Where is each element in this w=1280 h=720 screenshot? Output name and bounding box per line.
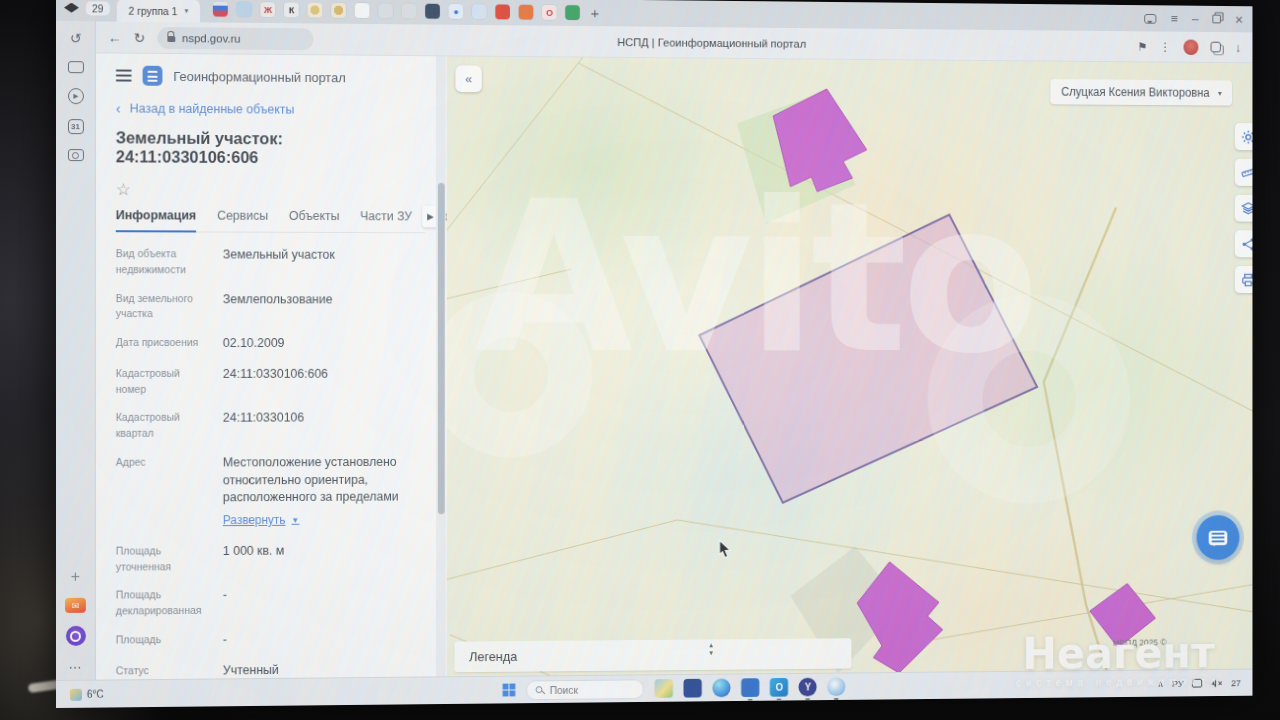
window-controls: ≡ – × [1145,11,1244,26]
edge-icon[interactable] [713,678,731,697]
parcel-fields: Вид объекта недвижимостиЗемельный участо… [116,246,425,680]
add-panel-icon[interactable]: + [67,569,83,585]
legend-label: Легенда [469,649,517,664]
hamburger-menu-icon[interactable] [116,69,132,81]
field-row: АдресМестоположение установлено относите… [116,454,425,531]
field-value: - [223,631,227,649]
favicon-strip: ЖК●О [213,2,580,20]
search-icon [536,686,543,693]
weather-icon [70,688,82,700]
favicon-red[interactable] [496,4,511,19]
tab-counter-badge[interactable]: 29 [86,1,110,15]
more-menu-icon[interactable]: ⋮ [1160,40,1171,54]
weather-widget[interactable]: 6°C [70,688,104,700]
windows-start-icon[interactable] [503,683,516,696]
favicon-orange[interactable] [519,5,534,20]
field-row: Вид земельного участкаЗемлепользование [116,291,425,323]
browser-side-rail: ↺▶31 +✉⋯ [56,21,96,681]
map-ruler-tool[interactable] [1235,159,1253,186]
more-icon[interactable]: ⋯ [67,659,83,675]
favicon-pin-2[interactable] [402,4,417,19]
history-icon[interactable]: ↺ [67,30,83,46]
field-row: Кадастровый квартал24:11:0330106 [116,410,425,442]
minimize-button[interactable]: – [1192,14,1199,24]
favicon-doc[interactable] [355,3,370,18]
map-print-tool[interactable] [1235,266,1253,293]
sphere-browser-icon[interactable] [828,677,846,696]
panel-tab-3[interactable]: Объекты [289,209,340,232]
pinned-cap-icon[interactable] [64,3,79,13]
map-canvas[interactable]: Avito « Слуцкая Ксения Викторовна ▾ НСПД… [447,56,1253,677]
screenshot-icon[interactable] [67,149,83,161]
field-label: Вид объекта недвижимости [116,246,223,278]
field-value: Местоположение установлено относительно … [223,454,425,530]
favicon-shield[interactable] [237,2,252,17]
panel-tab-4[interactable]: Части ЗУ [360,209,412,232]
rdp-icon[interactable] [742,678,760,697]
favicon-emblem-2[interactable] [331,3,346,18]
close-button[interactable]: × [1235,13,1243,25]
back-icon[interactable]: ← [108,29,122,45]
new-tab-button[interactable]: + [591,4,599,21]
favicon-pin-1[interactable] [378,3,393,18]
monitor-screen: 29 2 группа 1 ▾ ЖК●О + ≡ – × ↺▶31 +✉⋯ ← … [56,0,1252,708]
widgets-icon[interactable] [655,679,673,698]
panel-scrollbar[interactable] [436,56,446,677]
map-share-tool[interactable] [1235,230,1253,257]
photo-of-monitor: { "browser": { "tab_count": "29", "tab_g… [0,0,1280,720]
field-row: Площадь- [116,630,425,650]
field-row: Вид объекта недвижимостиЗемельный участо… [116,246,425,278]
tray-clock[interactable]: 27 [1231,677,1243,688]
search-placeholder: Поиск [550,683,578,695]
lock-icon [167,36,175,42]
download-icon[interactable]: ↓ [1235,40,1241,55]
page-title: НСПД | Геоинформационный портал [617,36,806,49]
chevron-down-icon: ▼ [291,515,299,526]
field-value: 1 000 кв. м [223,542,285,574]
chat-bubble-icon[interactable] [1145,13,1157,23]
legend-bar[interactable]: Легенда ▲▼ [454,638,851,672]
map-toolbox [1235,123,1253,293]
taskbar-search[interactable]: Поиск [526,679,644,700]
browser-menu-icon[interactable]: ≡ [1171,11,1178,26]
neagent-brand: Неагент [1016,632,1221,674]
yandex-browser-icon[interactable]: Y [799,678,817,697]
favicon-emblem-1[interactable] [308,3,323,18]
field-label: Статус [116,662,223,681]
portal-logo-icon [143,66,163,86]
portal-title: Геоинформационный портал [173,68,345,84]
chat-lines-icon [1209,530,1228,545]
favorite-star-icon[interactable]: ☆ [116,179,134,200]
back-to-results-link[interactable]: ‹ Назад в найденные объекты [116,101,425,117]
parcel-title: Земельный участок: 24:11:0330106:606 [116,128,425,168]
tabs-icon[interactable] [67,61,83,73]
chat-fab-button[interactable] [1197,515,1240,560]
address-bar[interactable]: nspd.gov.ru [157,26,313,49]
profile-avatar[interactable] [1183,39,1198,55]
expand-address-link[interactable]: Развернуть▼ [223,512,299,529]
mail-icon[interactable]: ✉ [65,598,86,613]
avito-watermark: Avito [474,173,1034,382]
parcel-info-panel: Геоинформационный портал ‹ Назад в найде… [96,53,447,680]
calendar-icon[interactable]: 31 [67,119,83,134]
bookmark-icon[interactable]: ⚑ [1137,40,1147,54]
chevron-down-icon: ▾ [184,6,188,15]
back-link-label: Назад в найденные объекты [130,102,295,117]
field-value: 24:11:0330106:606 [223,366,328,397]
weather-temp: 6°C [87,689,104,700]
map-layers-tool[interactable] [1235,195,1253,222]
panel-tab-2[interactable]: Сервисы [217,209,268,232]
extensions-icon[interactable] [1210,42,1220,53]
field-label: Площадь уточненная [116,543,223,575]
field-value: Учтенный [223,661,279,679]
field-row: Кадастровый номер24:11:0330106:606 [116,366,425,398]
favicon-dark[interactable] [425,4,440,19]
video-icon[interactable]: ▶ [67,88,83,104]
field-value: 24:11:0330106 [223,410,304,441]
alice-icon[interactable] [65,626,85,646]
field-value: - [223,587,227,618]
field-label: Кадастровый номер [116,366,223,397]
reload-icon[interactable]: ↻ [134,29,146,45]
chevron-left-icon: ‹ [116,103,121,113]
app-grid-icon[interactable] [684,679,702,698]
neagent-subtitle: система недвижимости [1016,676,1221,689]
favicon-blue[interactable] [472,4,487,19]
field-label: Площадь [116,631,223,650]
field-row: Площадь уточненная1 000 кв. м [116,542,425,575]
active-tab-group[interactable]: 2 группа 1 ▾ [116,0,200,22]
user-account-badge[interactable]: Слуцкая Ксения Викторовна ▾ [1051,79,1232,106]
outlook-icon[interactable]: O [770,678,788,697]
favicon-red-ring[interactable]: О [542,5,557,20]
field-value: Земельный участок [223,247,335,279]
favicon-green-table[interactable] [565,5,580,20]
favicon-blue-dot[interactable]: ● [449,4,464,19]
legend-toggle-chevrons[interactable]: ▲▼ [708,642,714,656]
field-label: Дата присвоения [116,335,223,353]
field-value: 02.10.2009 [223,335,285,353]
field-value: Землепользование [223,291,333,322]
url-text: nspd.gov.ru [182,32,241,44]
neagent-watermark: Неагент система недвижимости [1016,632,1221,688]
field-label: Площадь декларированная [116,587,223,619]
field-row: Площадь декларированная- [116,586,425,620]
favicon-heart-flag[interactable] [213,2,228,17]
field-label: Адрес [116,454,223,530]
taskbar-apps: Поиск OY [503,677,846,700]
user-name: Слуцкая Ксения Викторовна [1061,85,1209,100]
field-label: Вид земельного участка [116,291,223,323]
chevron-down-icon: ▾ [1218,89,1222,98]
tab-group-label: 2 группа 1 [128,4,177,16]
map-settings-tool[interactable] [1235,123,1253,150]
collapse-panel-button[interactable]: « [455,65,481,92]
favicon-zh[interactable]: Ж [261,2,276,17]
field-row: Дата присвоения02.10.2009 [116,335,425,353]
field-label: Кадастровый квартал [116,410,223,442]
panel-tabs: ИнформацияСервисыОбъектыЧасти ЗУСост▶ [116,208,425,233]
panel-tab-1[interactable]: Информация [116,208,196,231]
favicon-k[interactable]: К [284,2,299,17]
restore-button[interactable] [1213,15,1221,24]
mouse-cursor [719,539,732,559]
